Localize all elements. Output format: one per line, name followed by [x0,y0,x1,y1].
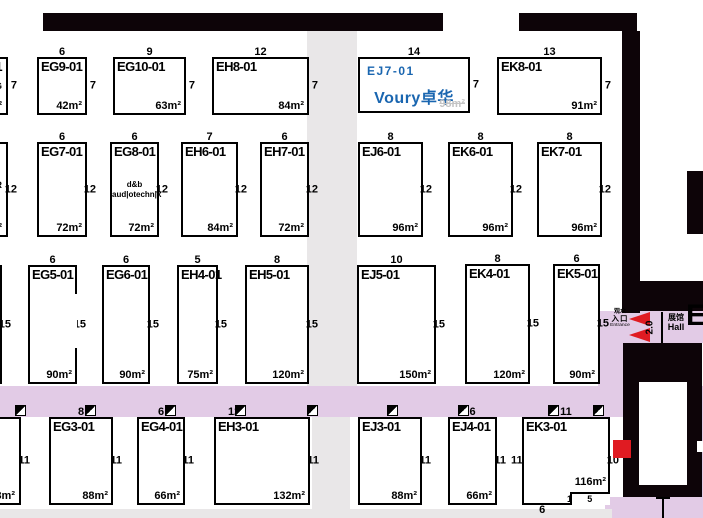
booth-dim-right: 7 [605,81,611,92]
booth-dim-top: 6 [104,255,148,266]
hall-label-en: Hall [665,323,687,333]
booth-dim-right: 15 [0,319,11,330]
booth-code: EK7-01 [541,144,581,159]
booth-code: EH8-01 [216,59,256,74]
booth-dim-top: 13 [499,47,600,58]
booth-dim-right: 11 [419,456,431,467]
booth-dim-top: 6 [139,407,183,418]
booth-EH4-01[interactable]: EH4-0151575m² [177,265,218,384]
booth-dim-right: 11 [18,456,30,467]
booth-dim-right: 15 [433,319,445,330]
hall-label: 展馆 Hall [665,314,687,333]
booth-code: EJ3-01 [362,419,400,434]
booth-area: 42m² [56,100,82,112]
notch-dim-h: 5 [587,494,592,504]
gate-width-label: 2.0 [641,312,659,343]
booth-code: EG9-01 [41,59,82,74]
booth-dim-top: 6 [555,254,598,265]
booth-code: EK4-01 [469,266,509,281]
booth-area: 132m² [273,490,305,502]
pillar-marker-icon [165,405,176,416]
pillar-marker-icon [387,405,398,416]
booth-dim-right: 7 [473,80,479,91]
booth-dim-right: 7 [189,81,195,92]
booth-area: m² [0,222,2,234]
pillar-marker-icon [15,405,26,416]
red-marker [613,440,631,458]
booth-dim-top: 6 [262,132,307,143]
booth-code: EH6-01 [185,144,225,159]
booth-dim-top: 14 [360,47,468,58]
booth-dim-top: 8 [467,254,528,265]
booth-dim-top: 8 [539,132,600,143]
exhibition-floor-plan: 观众 入口 Entrance 2.0 展馆 Hall E 1NG7m²EG9-0… [0,0,703,518]
booth-EK3-01[interactable]: EK3-011110116116m²15 [522,417,610,505]
booth-EH3-01[interactable]: EH3-011211132m² [214,417,310,505]
booth-code: EG4-01 [141,419,182,434]
booth-code: EG8-01 [114,144,155,159]
pillar-marker-icon [593,405,604,416]
wall [622,31,640,313]
booth-area: 88m² [82,490,108,502]
gate-divider-line [661,312,663,343]
booth-area: 75m² [187,369,213,381]
booth-area: 72m² [56,222,82,234]
booth-EK8-01[interactable]: EK8-0113791m² [497,57,602,115]
booth-area: 72m² [278,222,304,234]
booth-area: m² [0,100,2,112]
booth-dim-right: 15 [215,319,227,330]
booth-dim-right: 12 [510,184,522,195]
dimension-line [656,497,670,499]
booth-code: EJ4-01 [452,419,490,434]
booth-dim-right: 11 [307,456,319,467]
booth-EG8-01[interactable]: EG8-01d&b aud|otechn|k61272m² [110,142,159,237]
booth-EG3-01[interactable]: EG3-0181188m² [49,417,113,505]
booth-dim-top: 6 [39,132,85,143]
booth-dim-top: 5 [179,255,216,266]
booth-area: 98m² [439,98,465,110]
wall [43,13,443,31]
booth-code: EG3-01 [53,419,94,434]
pillar-marker-icon [458,405,469,416]
booth-code: EH7-01 [264,144,304,159]
pillar-marker-icon [548,405,559,416]
booth-dim-top: 6 [112,132,157,143]
booth-dim-top: 6 [30,255,75,266]
booth-dim-right: 11 [110,456,122,467]
booth-area: 66m² [466,490,492,502]
booth-dim-bottom: 6 [539,505,545,516]
booth-EK4-01[interactable]: EK4-01815120m² [465,264,530,384]
booth-area: 96m² [482,222,508,234]
booth-notch: 15 [570,492,610,505]
booth-EH6-01[interactable]: EH6-0171284m² [181,142,238,237]
booth-EK5-01[interactable]: EK5-0161590m² [553,264,600,384]
booth-dim-top: 10 [359,255,434,266]
booth-area: 96m² [571,222,597,234]
booth-dim-right: 7 [312,81,318,92]
booth-code: EK3-01 [526,419,566,434]
booth-area: 63m² [155,100,181,112]
booth-dim-top: 6 [450,407,495,418]
booth-dim-top: 8 [51,407,111,418]
booth-area: 150m² [399,369,431,381]
booth-dim-top: 9 [115,47,184,58]
booth-code: EK8-01 [501,59,541,74]
booth-dim-right: 11 [182,456,194,467]
booth-dim-left: 11 [511,456,523,467]
hall-letter: E [686,301,703,331]
booth-area: 91m² [571,100,597,112]
dimension-line [662,497,664,518]
booth-dim-right: 12 [235,184,247,195]
booth-code: EJ6-01 [362,144,400,159]
booth-dim-top: 8 [360,132,421,143]
booth-code: 1 [0,59,2,74]
booth-area: 96m² [392,222,418,234]
booth-area: 72m² [128,222,154,234]
booth-dim-right: 12 [5,184,17,195]
booth-dim-right: 12 [306,184,318,195]
booth-dim-top: 8 [247,255,307,266]
booth-area: 90m² [569,369,595,381]
aisle-purple [605,497,703,518]
booth-dim-top: 12 [214,47,307,58]
booth-exhibitor-name: ER [0,180,2,190]
booth-exhibitor-name: NG [0,81,2,91]
booth-dim-right: 15 [147,319,159,330]
wall-opening [697,441,703,452]
booth-dim-right: 7 [90,81,96,92]
booth-exhibitor-name: d&b aud|otechn|k [112,180,157,198]
booth-area: 84m² [278,100,304,112]
booth-dim-right: 12 [84,184,96,195]
booth-area: 90m² [119,369,145,381]
aisle-purple [598,343,624,386]
booth-dim-right: 15 [527,319,539,330]
booth-code: EG6-01 [106,267,147,282]
booth-dim-right: 7 [11,81,17,92]
booth-dim-top: 6 [39,47,85,58]
booth-area: 120m² [272,369,304,381]
pillar-marker-icon [235,405,246,416]
booth-area: 120m² [493,369,525,381]
booth-EK7-01[interactable]: EK7-0181296m² [537,142,602,237]
booth-area: 116m² [575,476,606,488]
booth-area: 88m² [0,490,15,502]
pillar-marker-icon [307,405,318,416]
booth-code: EJ7-01 [367,64,415,78]
booth-code: EK6-01 [452,144,492,159]
booth-EJ4-01[interactable]: EJ4-0161166m² [448,417,497,505]
booth-area: 84m² [207,222,233,234]
booth-EG4-01[interactable]: EG4-0161166m² [137,417,185,505]
booth-EJ6-01[interactable]: EJ6-0181296m² [358,142,423,237]
booth-code: EK5-01 [557,266,597,281]
booth-EG10-01[interactable]: EG10-019763m² [113,57,186,115]
booth-area: 90m² [46,369,72,381]
wall [687,171,703,234]
booth-partial[interactable]: 1188m² [0,417,21,505]
booth-area: 88m² [391,490,417,502]
booth-code: EH5-01 [249,267,289,282]
booth-partial[interactable]: ER12m² [0,142,8,237]
booth-door-opening [74,294,77,348]
booth-dim-right: 15 [306,319,318,330]
booth-code: EG10-01 [117,59,165,74]
booth-dim-right: 12 [420,184,432,195]
booth-EG9-01[interactable]: EG9-016742m² [37,57,87,115]
booth-EH5-01[interactable]: EH5-01815120m² [245,265,309,384]
booth-area: 66m² [154,490,180,502]
aisle-gray [0,509,612,518]
booth-code: EG5-01 [32,267,73,282]
booth-EG7-01[interactable]: EG7-0161272m² [37,142,87,237]
wall-opening [639,382,687,485]
booth-code: EG7-01 [41,144,82,159]
booth-dim-right: 11 [494,456,506,467]
notch-dim-v: 1 [567,494,572,504]
wall [519,13,637,31]
booth-EH8-01[interactable]: EH8-0112784m² [212,57,309,115]
booth-EG6-01[interactable]: EG6-0161590m² [102,265,150,384]
booth-code: EH4-01 [181,267,221,282]
booth-EJ5-01[interactable]: EJ5-011015150m² [357,265,436,384]
booth-partial[interactable]: 15m² [0,265,2,384]
booth-code: EJ5-01 [361,267,399,282]
booth-dim-right: 12 [156,184,168,195]
booth-code: EH3-01 [218,419,258,434]
booth-EJ7-01[interactable]: EJ7-01Voury卓华14798m² [358,57,470,113]
booth-1[interactable]: 1NG7m² [0,57,8,115]
booth-dim-right: 12 [599,184,611,195]
booth-EH7-01[interactable]: EH7-0161272m² [260,142,309,237]
booth-EG5-01[interactable]: EG5-0161590m² [28,265,77,384]
pillar-marker-icon [85,405,96,416]
booth-dim-top: 7 [183,132,236,143]
booth-dim-top: 8 [450,132,511,143]
booth-EK6-01[interactable]: EK6-0181296m² [448,142,513,237]
booth-EJ3-01[interactable]: EJ3-0181188m² [358,417,422,505]
